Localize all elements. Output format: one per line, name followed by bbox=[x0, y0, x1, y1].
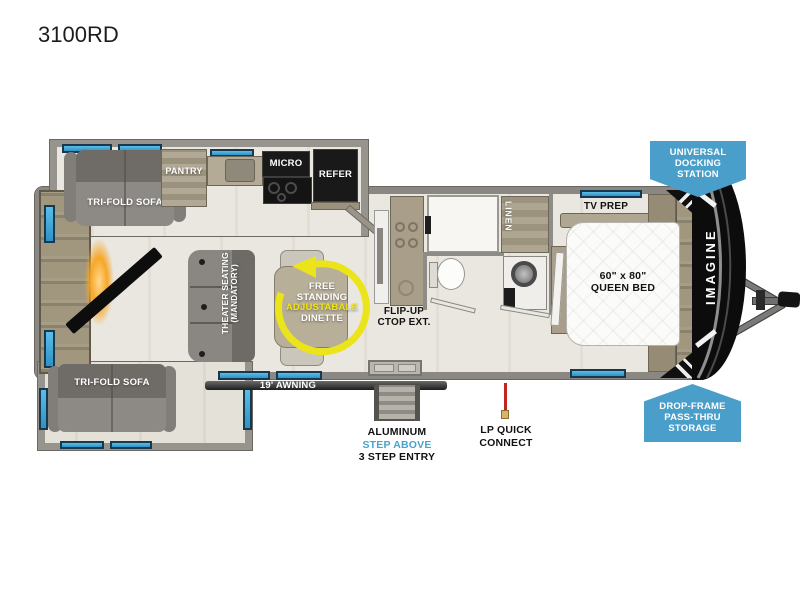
window bbox=[44, 330, 55, 368]
storage-badge-line3: STORAGE bbox=[644, 423, 741, 434]
island-sink-icon bbox=[395, 238, 405, 248]
lp-label-line2: CONNECT bbox=[466, 437, 546, 450]
window bbox=[44, 205, 55, 243]
lp-label: LP QUICK CONNECT bbox=[466, 424, 546, 449]
island-sink-icon bbox=[395, 222, 405, 232]
window bbox=[218, 371, 270, 380]
pantry-label: PANTRY bbox=[159, 166, 209, 176]
island-detail-icon bbox=[398, 280, 414, 296]
bathroom-wall bbox=[423, 252, 427, 310]
docking-badge-line3: STATION bbox=[650, 169, 746, 180]
awning-label: 19' AWNING bbox=[243, 381, 333, 390]
pantry-cabinet bbox=[161, 149, 207, 207]
window bbox=[276, 371, 322, 380]
entry-step-well-inner bbox=[398, 364, 416, 372]
sofa-bottom-label: TRI-FOLD SOFA bbox=[52, 378, 172, 389]
flip-up-label: FLIP-UP CTOP EXT. bbox=[362, 306, 446, 328]
microwave: MICRO bbox=[262, 151, 310, 177]
queen-bed-label-line2: QUEEN BED bbox=[576, 283, 670, 295]
window bbox=[243, 388, 252, 430]
hitch-coupler bbox=[778, 291, 800, 307]
island-sink-icon bbox=[408, 222, 418, 232]
lp-nozzle-icon bbox=[501, 410, 509, 419]
kitchen-sink bbox=[225, 159, 255, 182]
page-title: 3100RD bbox=[38, 22, 119, 48]
theater-label: THEATER SEATING (MANDATORY) bbox=[221, 227, 239, 359]
tv-prep-label: TV PREP bbox=[566, 201, 646, 212]
entry-label-line3: 3 STEP ENTRY bbox=[340, 451, 454, 464]
entry-label-line2: STEP ABOVE bbox=[340, 439, 454, 452]
docking-badge-line1: UNIVERSAL bbox=[650, 147, 746, 158]
pass-thru-storage-badge: DROP-FRAME PASS-THRU STORAGE bbox=[644, 384, 741, 442]
window bbox=[60, 441, 104, 449]
dinette-label: FREE STANDING ADJUSTABALE DINETTE bbox=[281, 282, 363, 325]
lp-label-line1: LP QUICK bbox=[466, 424, 546, 437]
cupholder-icon bbox=[201, 304, 207, 310]
entry-step-well-inner bbox=[374, 364, 394, 372]
brand-label: IMAGINE bbox=[704, 192, 719, 342]
burner-icon bbox=[277, 193, 286, 202]
washer-door-icon bbox=[511, 261, 537, 287]
flip-up-label-line2: CTOP EXT. bbox=[362, 317, 446, 328]
cupholder-icon bbox=[199, 259, 205, 265]
hitch-jack bbox=[756, 290, 765, 310]
linen-label: LINEN bbox=[503, 201, 513, 232]
window bbox=[580, 190, 642, 198]
queen-bed-label-line1: 60" x 80" bbox=[576, 271, 670, 283]
storage-badge-line1: DROP-FRAME bbox=[644, 401, 741, 412]
flip-up-label-line1: FLIP-UP bbox=[362, 306, 446, 317]
island-sink-icon bbox=[408, 238, 418, 248]
entry-label-line1: ALUMINUM bbox=[340, 426, 454, 439]
shower-handle-icon bbox=[425, 216, 431, 234]
shower bbox=[427, 195, 499, 253]
theater-label-line2: (MANDATORY) bbox=[230, 227, 239, 359]
toilet-bowl bbox=[437, 258, 465, 290]
dinette-label-line4: DINETTE bbox=[281, 314, 363, 325]
micro-label: MICRO bbox=[270, 159, 303, 170]
flip-up-handle bbox=[377, 228, 383, 284]
window bbox=[39, 388, 48, 430]
window bbox=[110, 441, 152, 449]
burner-icon bbox=[285, 182, 297, 194]
floorplan-canvas: 3100RD TRI-FOLD SOFA PANTRY MICRO REFER bbox=[0, 0, 800, 600]
cupholder-icon bbox=[199, 351, 205, 357]
docking-badge-line2: DOCKING bbox=[650, 158, 746, 169]
burner-icon bbox=[268, 182, 280, 194]
entry-steps-label: ALUMINUM STEP ABOVE 3 STEP ENTRY bbox=[340, 426, 454, 464]
refrigerator: REFER bbox=[313, 149, 358, 202]
sofa-seat bbox=[58, 398, 166, 432]
bathroom-wall bbox=[424, 252, 504, 256]
queen-bed-label: 60" x 80" QUEEN BED bbox=[576, 271, 670, 295]
entry-steps bbox=[374, 385, 420, 421]
refer-label: REFER bbox=[319, 170, 352, 181]
storage-badge-line2: PASS-THRU bbox=[644, 412, 741, 423]
window bbox=[570, 369, 626, 378]
lp-line bbox=[504, 383, 507, 411]
